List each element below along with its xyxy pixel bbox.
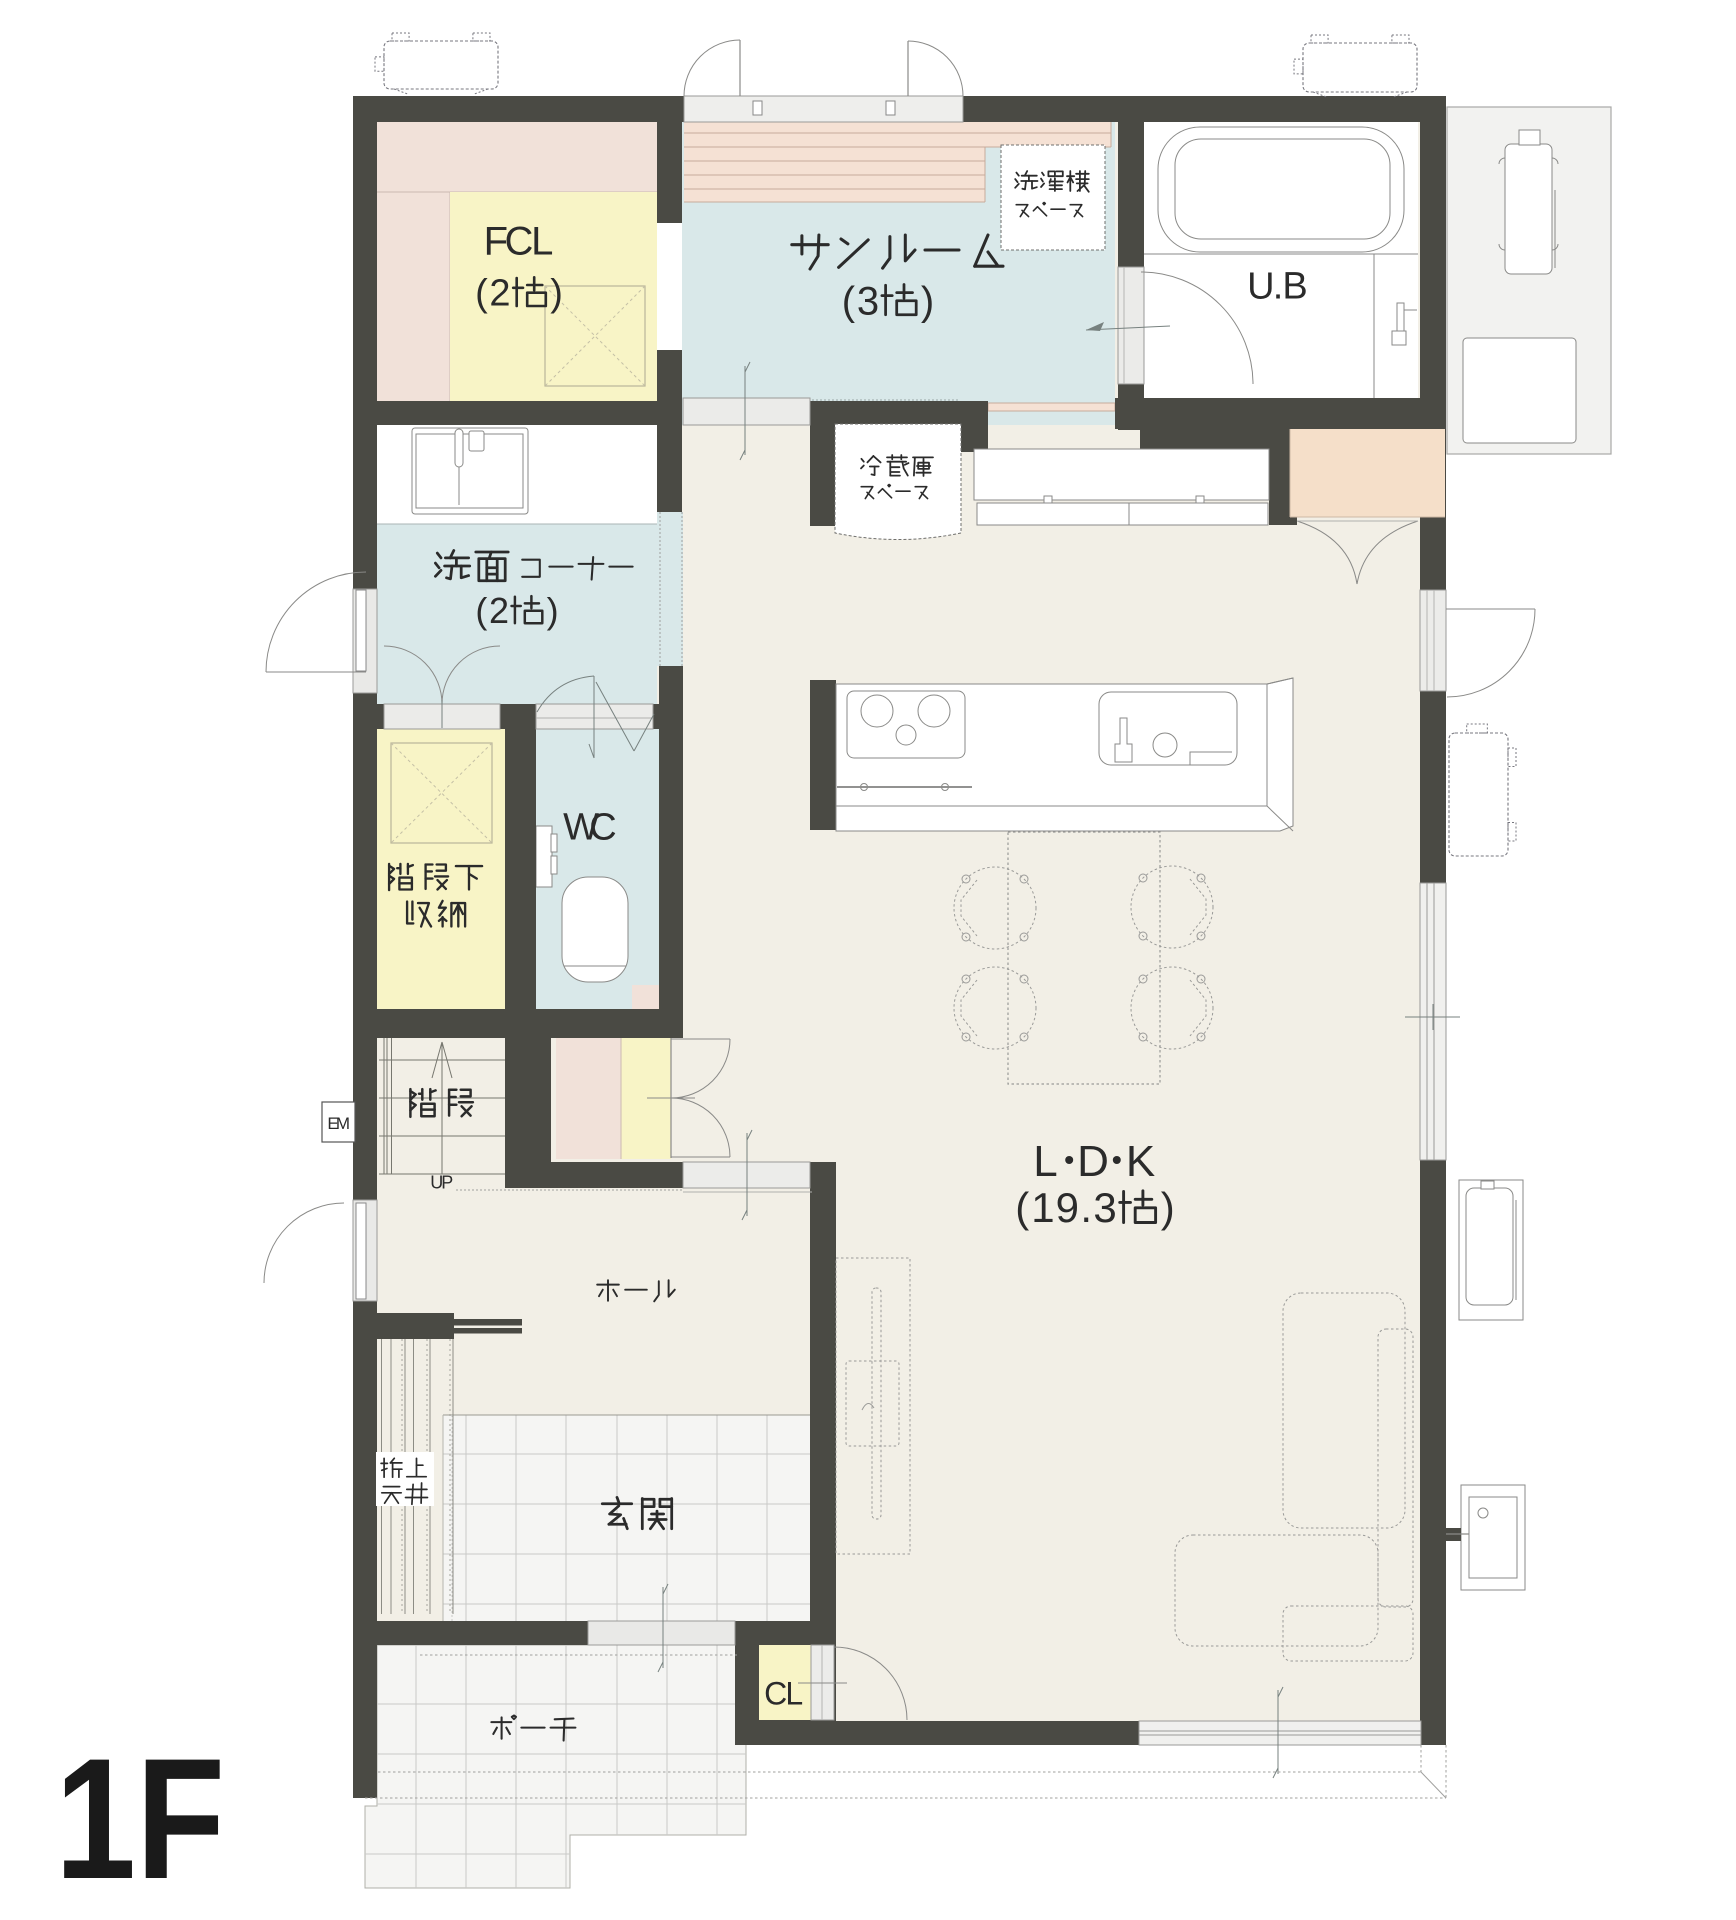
svg-text:.: .: [1080, 1184, 1092, 1231]
svg-text:U: U: [1247, 266, 1274, 308]
svg-text:): ): [547, 590, 559, 631]
svg-text:M: M: [336, 1114, 350, 1133]
svg-text:C: C: [764, 1676, 787, 1712]
svg-text:K: K: [1126, 1137, 1155, 1186]
svg-text:2: 2: [489, 590, 509, 631]
svg-text:(: (: [1015, 1184, 1029, 1231]
svg-text:): ): [550, 273, 563, 315]
svg-text:C: C: [589, 807, 616, 849]
svg-text:3: 3: [857, 279, 879, 323]
svg-text:P: P: [441, 1173, 453, 1193]
svg-text:(: (: [475, 273, 488, 315]
svg-text:C: C: [505, 219, 534, 263]
svg-text:3: 3: [1093, 1184, 1116, 1231]
svg-text:): ): [1161, 1184, 1175, 1231]
svg-text:9: 9: [1056, 1184, 1079, 1231]
svg-text:1: 1: [1031, 1184, 1054, 1231]
svg-text:L: L: [1033, 1137, 1057, 1186]
svg-text:1F: 1F: [55, 1723, 225, 1915]
svg-text:L: L: [785, 1676, 803, 1712]
svg-text:L: L: [531, 219, 553, 263]
svg-text:(: (: [475, 590, 487, 631]
svg-text:(: (: [842, 279, 856, 323]
svg-text:D: D: [1077, 1137, 1109, 1186]
svg-text:): ): [921, 279, 934, 323]
svg-text:2: 2: [489, 273, 510, 315]
svg-text:B: B: [1282, 266, 1307, 308]
